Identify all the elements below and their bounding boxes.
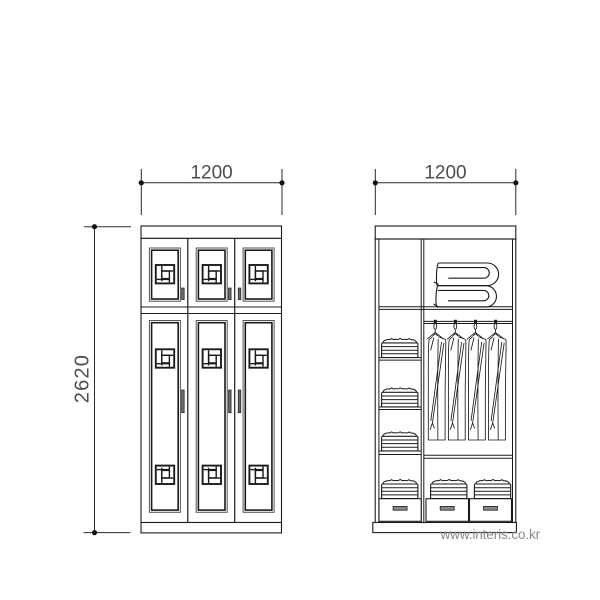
svg-text:2620: 2620 [71, 354, 93, 403]
svg-text:www.interis.co.kr: www.interis.co.kr [440, 527, 541, 542]
svg-text:1200: 1200 [190, 163, 232, 184]
svg-text:1200: 1200 [424, 163, 466, 184]
